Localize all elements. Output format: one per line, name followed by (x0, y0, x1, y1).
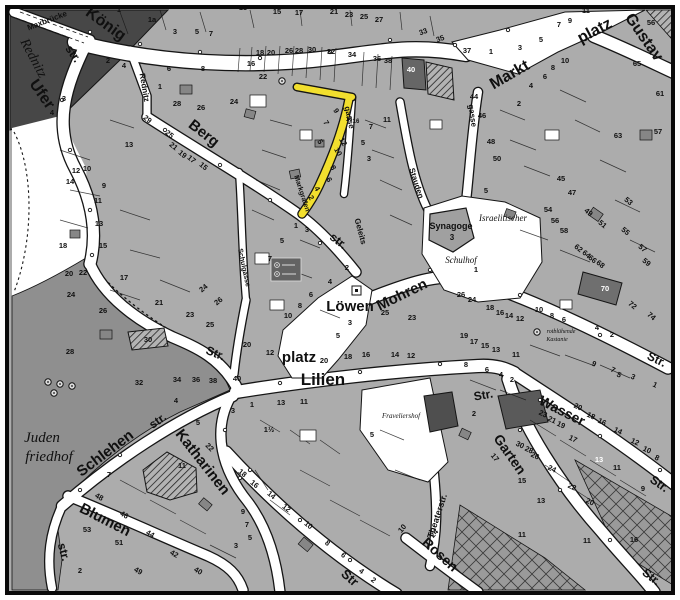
house-number: 54 (544, 205, 553, 214)
house-number: 34 (173, 375, 182, 384)
house-number: 61 (656, 89, 664, 98)
dark-building (402, 58, 426, 90)
house-number: 32 (135, 378, 143, 387)
house-number: 10 (535, 305, 543, 314)
house-number: 3 (234, 541, 238, 550)
house-number: 15 (518, 476, 526, 485)
house-number: 3 (518, 43, 522, 52)
house-number: 24 (230, 97, 239, 106)
house-number: 21 (155, 298, 163, 307)
street-label: Kastanie (545, 337, 568, 343)
boundary-stone-icon (558, 488, 561, 491)
house-number: 2 (472, 409, 476, 418)
house-number: 5 (539, 35, 543, 44)
house-number: 13 (125, 140, 133, 149)
house-number: 22 (79, 268, 87, 277)
house-number: 1 (158, 82, 162, 91)
house-number: 15 (481, 341, 489, 350)
house-number: 11 (94, 196, 102, 205)
house-number: 6 (562, 315, 566, 324)
house-number: 44 (470, 92, 479, 101)
house-number: 9 (641, 484, 645, 493)
house-number: 70 (601, 284, 609, 293)
house-number: 20 (243, 340, 251, 349)
house-number: 46 (478, 111, 486, 120)
house-number: 14 (505, 311, 514, 320)
boundary-stone-icon (268, 198, 271, 201)
house-number: 28 (173, 99, 181, 108)
boundary-stone-icon (506, 28, 509, 31)
house-number: 51 (115, 538, 123, 547)
boundary-stone-icon (358, 370, 361, 373)
tree-icon (51, 390, 57, 396)
house-number: 28 (295, 46, 303, 55)
house-number: 32 (327, 47, 335, 56)
house-number: 1 (294, 221, 298, 230)
boundary-stone-icon (138, 42, 141, 45)
house-number: 14 (391, 350, 400, 359)
house-number: 9 (102, 181, 106, 190)
house-number: 13 (537, 496, 545, 505)
house-number: 47 (568, 188, 576, 197)
house-number: 5 (195, 27, 199, 36)
house-number: 9 (241, 507, 245, 516)
house-number: 2 (106, 56, 110, 65)
street-label: Lilien (301, 370, 345, 389)
house-number: 5 (370, 430, 374, 439)
house-number: 8 (298, 301, 302, 310)
house-number: 2 (78, 566, 82, 575)
boundary-stone-icon (428, 268, 431, 271)
house-number: 17 (295, 8, 303, 17)
house-number: 12 (266, 348, 274, 357)
house-number: 53 (83, 525, 91, 534)
house-number: 25 (360, 12, 368, 21)
house-number: 7 (245, 520, 249, 529)
house-number: 1 (474, 265, 478, 274)
house-number: 8 (550, 311, 554, 320)
house-number: 1 (489, 47, 493, 56)
street-label: Fraveliershof (381, 412, 421, 420)
house-number: 57 (654, 127, 662, 136)
street-label: Israelitischer (478, 213, 527, 223)
house-number: 20 (65, 269, 73, 278)
house-number: 8 (551, 63, 555, 72)
house-number: 38 (209, 376, 217, 385)
house-number: 40 (407, 65, 415, 74)
house-number: 23 (345, 10, 353, 19)
house-number: 13 (95, 219, 103, 228)
synagogue-label: Synagoge (429, 221, 472, 231)
house-number: 1a (148, 15, 157, 24)
house-number: 1 (250, 400, 254, 409)
house-number: 28 (66, 347, 74, 356)
house-number: 10 (83, 164, 91, 173)
city-map: 11a3571315172123252733353713579115856246… (0, 0, 680, 600)
boundary-stone-icon (518, 428, 521, 431)
boundary-stone-icon (90, 253, 93, 256)
house-number: 13 (277, 398, 285, 407)
boundary-stone-icon (88, 208, 91, 211)
cemetery-label: friedhof (25, 449, 74, 465)
boundary-stone-icon (598, 333, 601, 336)
house-number: 8 (464, 360, 468, 369)
house-number: 5 (248, 533, 252, 542)
house-number: 13 (492, 345, 500, 354)
house-number: 5 (196, 418, 200, 427)
house-number: 5 (280, 236, 284, 245)
house-number: 2 (610, 330, 614, 339)
house-number: 12 (407, 351, 415, 360)
boundary-stone-icon (278, 381, 281, 384)
boundary-stone-icon (318, 241, 321, 244)
boundary-stone-icon (608, 538, 611, 541)
house-number: 17 (470, 337, 478, 346)
house-number: 8 (201, 64, 205, 73)
house-number: 19 (460, 331, 468, 340)
house-number: 7 (209, 29, 213, 38)
house-number: 23 (408, 313, 416, 322)
house-number: 30 (308, 45, 316, 54)
house-number: 26 (197, 103, 205, 112)
house-number: 3 (348, 318, 352, 327)
house-number: 6 (309, 290, 313, 299)
house-number: 18 (486, 303, 494, 312)
house-number: 13 (595, 455, 603, 464)
street-label: platz (282, 349, 316, 366)
map-page: 11a3571315172123252733353713579115856246… (0, 0, 680, 600)
house-number: 3 (173, 27, 177, 36)
house-number: 63 (614, 131, 622, 140)
house-number: 45 (557, 174, 565, 183)
house-number: 11 (518, 530, 526, 539)
house-number: 16 (247, 59, 255, 68)
house-number: 16 (496, 308, 504, 317)
tree-icon (69, 383, 75, 389)
house-number: 2 (517, 99, 521, 108)
house-number: 24 (67, 290, 76, 299)
house-number: 20 (267, 48, 275, 57)
house-number: 25 (206, 320, 214, 329)
boundary-stone-icon (223, 428, 226, 431)
house-number: 24 (468, 295, 477, 304)
house-number: 7 (557, 20, 561, 29)
hatched-building (426, 62, 454, 100)
boundary-stone-icon (298, 518, 301, 521)
dark-building (424, 392, 458, 432)
house-number: 16 (362, 350, 370, 359)
boundary-stone-icon (68, 148, 71, 151)
house-number: 26 (99, 306, 107, 315)
monument (352, 286, 361, 295)
house-number: 26 (457, 290, 465, 299)
boundary-stone-icon (218, 163, 221, 166)
house-number: 11 (613, 463, 621, 472)
house-number: 34 (348, 50, 357, 59)
tree-icon (45, 379, 51, 385)
house-number: 37 (463, 46, 471, 55)
house-number: 3 (231, 406, 235, 415)
house-number: 6 (543, 72, 547, 81)
boundary-stone-icon (78, 488, 81, 491)
legend-box (271, 258, 301, 281)
house-number: 7 (268, 254, 272, 263)
house-number: 3 (62, 94, 66, 103)
house-number: 56 (647, 18, 655, 27)
boundary-stone-icon (88, 30, 91, 33)
house-number: 36 (373, 54, 381, 63)
street-label: Löwen (326, 298, 374, 315)
house-number: 48 (487, 137, 495, 146)
boundary-stone-icon (518, 293, 521, 296)
house-number: 5 (484, 186, 488, 195)
boundary-stone-icon (438, 362, 441, 365)
house-number: 26 (285, 46, 293, 55)
house-number: 9 (568, 16, 572, 25)
house-number: 18 (344, 352, 352, 361)
house-number: 11 (178, 461, 186, 470)
house-number: 16 (630, 535, 638, 544)
house-number: 7 (369, 122, 373, 131)
house-number: 17 (120, 273, 128, 282)
house-number: 12 (72, 166, 80, 175)
synagogue-label: 3 (450, 233, 455, 242)
house-number: 11 (583, 536, 591, 545)
house-number: 20 (320, 356, 328, 365)
house-number: 11 (300, 397, 308, 406)
house-number: 23 (186, 310, 194, 319)
house-number: 2 (510, 375, 514, 384)
house-number: 11 (383, 115, 391, 124)
house-number: 7 (107, 470, 111, 479)
boundary-stone-icon (453, 43, 456, 46)
house-number: 36 (192, 375, 200, 384)
house-number: 22 (259, 72, 267, 81)
house-number: 11 (512, 350, 520, 359)
house-number: 5 (361, 138, 365, 147)
house-number: 50 (493, 154, 501, 163)
street-label: rotblühende (547, 329, 576, 335)
tree-icon (279, 78, 285, 84)
house-number: 10 (284, 311, 292, 320)
tree-icon (57, 381, 63, 387)
house-number: 3 (367, 154, 371, 163)
boundary-stone-icon (198, 50, 201, 53)
boundary-stone-icon (348, 558, 351, 561)
house-number: 10 (561, 56, 569, 65)
house-number: 30 (144, 335, 152, 344)
house-number: 12 (516, 314, 524, 323)
house-number: 58 (560, 226, 568, 235)
house-number: 18 (59, 241, 67, 250)
house-number: 65 (633, 59, 641, 68)
house-number: 27 (375, 15, 383, 24)
tree-icon (534, 329, 540, 335)
street-label: Schulhof (445, 255, 478, 265)
boundary-stone-icon (388, 38, 391, 41)
house-number: 40 (233, 374, 241, 383)
house-number: 14 (66, 177, 75, 186)
house-number: 6 (167, 64, 171, 73)
house-number: 18 (256, 48, 264, 57)
house-number: 3 (305, 225, 309, 234)
house-number: 2 (345, 263, 349, 272)
house-number: 38 (384, 56, 392, 65)
house-number: 5 (336, 331, 340, 340)
house-number: 1½ (264, 425, 274, 434)
cemetery-label: Juden (24, 430, 60, 446)
house-number: 15 (99, 241, 107, 250)
boundary-stone-icon (598, 434, 601, 437)
boundary-stone-icon (658, 468, 661, 471)
house-number: 56 (551, 216, 559, 225)
house-number: 6 (485, 365, 489, 374)
